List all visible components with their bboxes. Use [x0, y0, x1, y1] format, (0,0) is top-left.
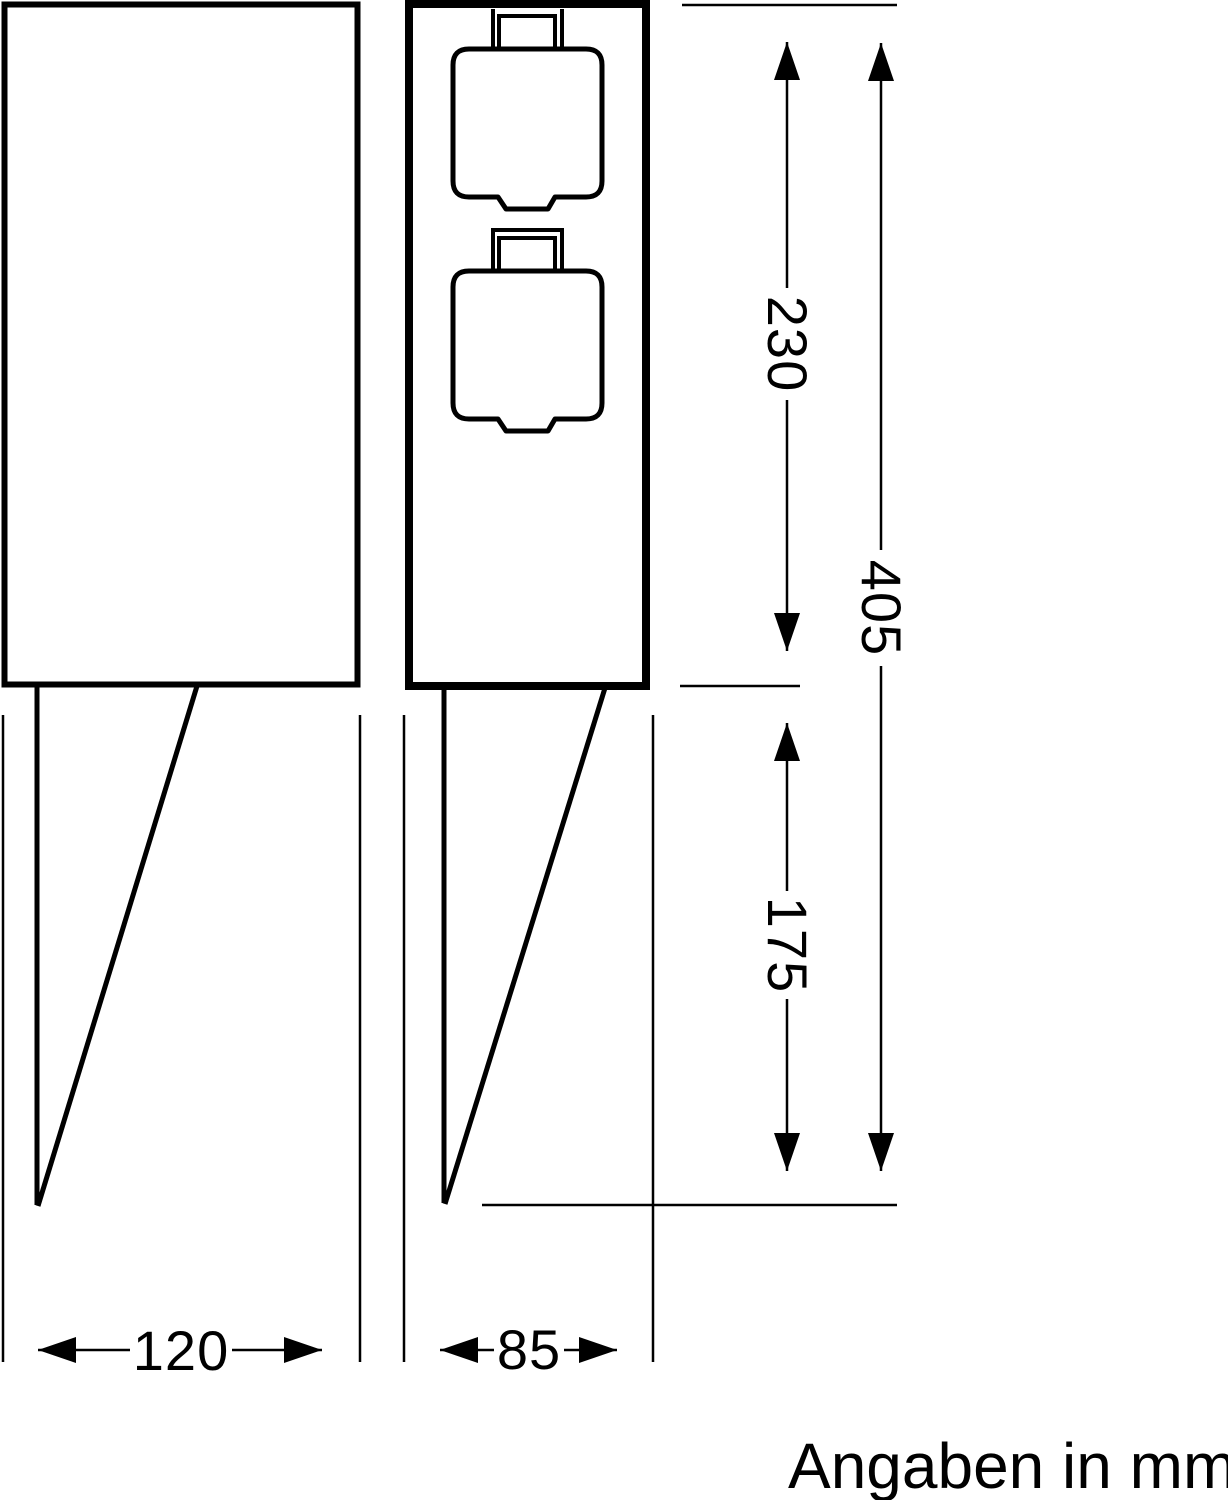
socket-bottom-lid	[453, 271, 602, 431]
arrow-down-icon	[774, 1133, 800, 1171]
socket-top-lid	[453, 49, 602, 209]
side-ground-spike	[444, 688, 605, 1204]
side-housing-outline	[409, 4, 646, 686]
arrow-left-icon	[38, 1337, 76, 1363]
dimension-label-spike-length: 175	[759, 897, 815, 993]
dimension-label-side-width: 85	[497, 1322, 561, 1378]
arrow-left-icon	[440, 1337, 478, 1363]
units-note: Angaben in mm	[788, 1434, 1228, 1498]
socket-cover-bottom	[453, 230, 602, 431]
arrow-right-icon	[284, 1337, 322, 1363]
arrow-up-icon	[868, 43, 894, 81]
dimension-label-front-width: 120	[133, 1323, 229, 1379]
diagram-canvas: 230 405 175 120 85 Angaben in mm	[0, 0, 1228, 1500]
dimension-label-housing-height: 230	[759, 296, 815, 392]
arrow-right-icon	[579, 1337, 617, 1363]
arrow-up-icon	[774, 42, 800, 80]
technical-drawing	[0, 0, 1228, 1500]
side-view	[409, 4, 646, 1204]
socket-bottom-hinge-inner	[499, 238, 555, 271]
arrow-down-icon	[774, 613, 800, 651]
socket-top-hinge-inner	[499, 16, 555, 49]
socket-cover-top	[453, 9, 602, 209]
arrow-down-icon	[868, 1133, 894, 1171]
front-view	[5, 5, 358, 1207]
front-ground-spike	[37, 686, 197, 1206]
arrow-up-icon	[774, 723, 800, 761]
dimension-label-total-height: 405	[853, 560, 909, 656]
front-housing-outline	[5, 5, 358, 685]
